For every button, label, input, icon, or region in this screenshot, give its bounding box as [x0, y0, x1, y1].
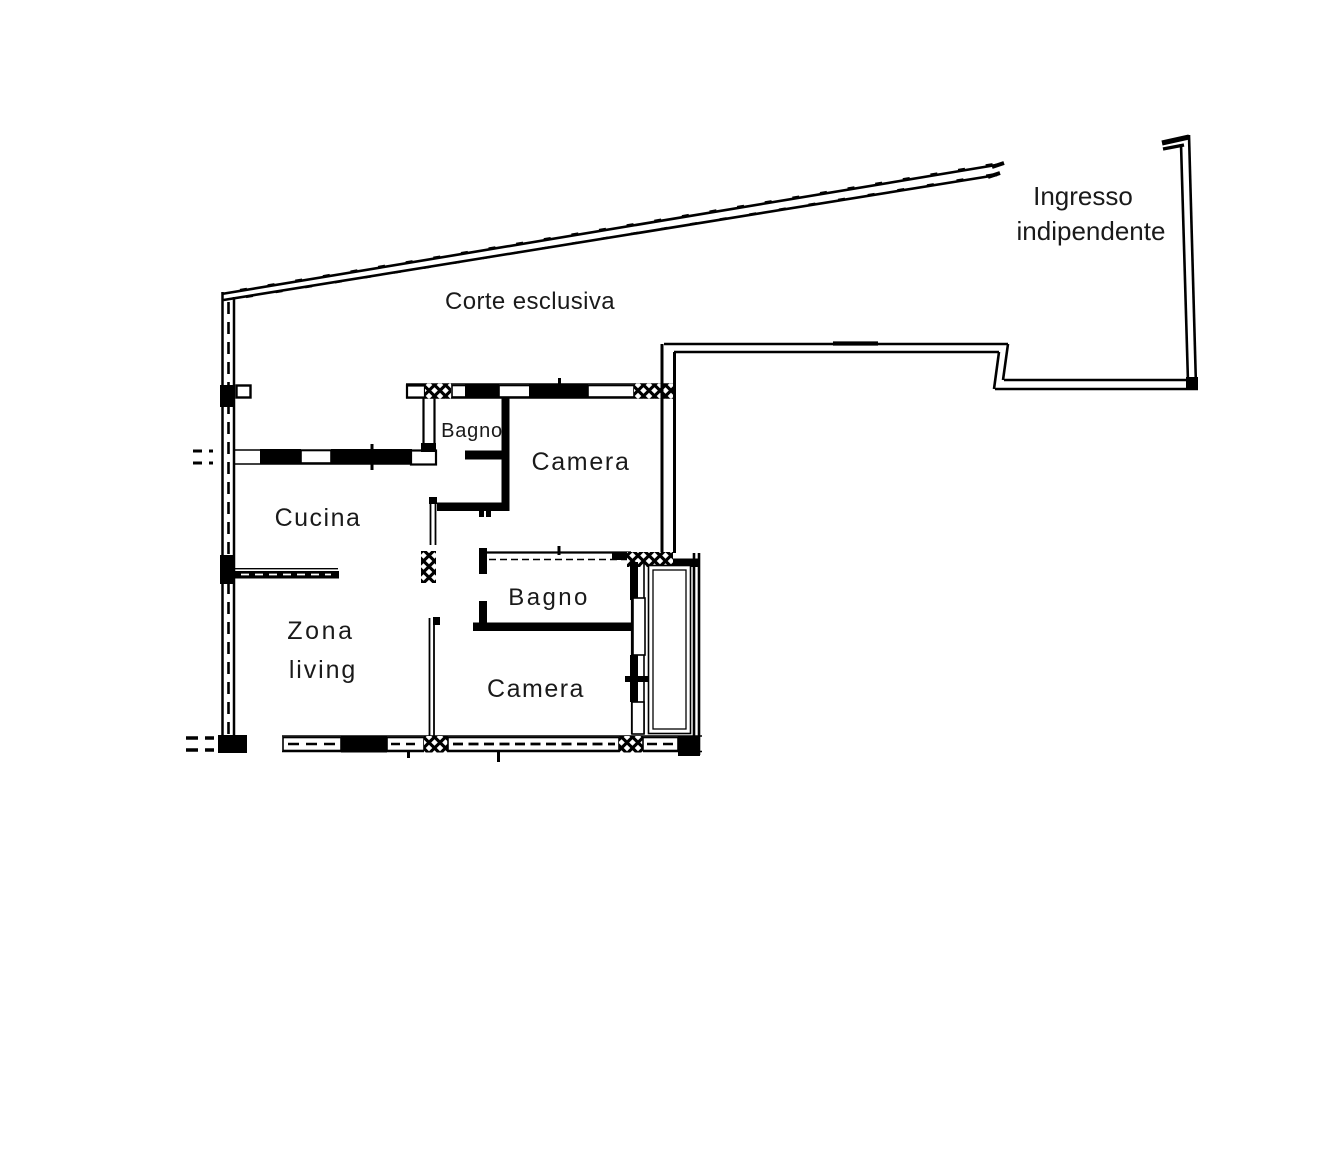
svg-text:Zona: Zona	[287, 617, 354, 645]
svg-text:living: living	[289, 656, 357, 684]
svg-text:Cucina: Cucina	[275, 504, 362, 532]
svg-text:Camera: Camera	[531, 448, 630, 476]
svg-text:Corte esclusiva: Corte esclusiva	[445, 288, 615, 315]
svg-text:Ingresso: Ingresso	[1033, 181, 1133, 211]
svg-text:Bagno: Bagno	[508, 584, 589, 611]
svg-text:indipendente: indipendente	[1017, 216, 1166, 246]
svg-text:Camera: Camera	[487, 675, 585, 703]
svg-text:Bagno: Bagno	[441, 420, 503, 442]
